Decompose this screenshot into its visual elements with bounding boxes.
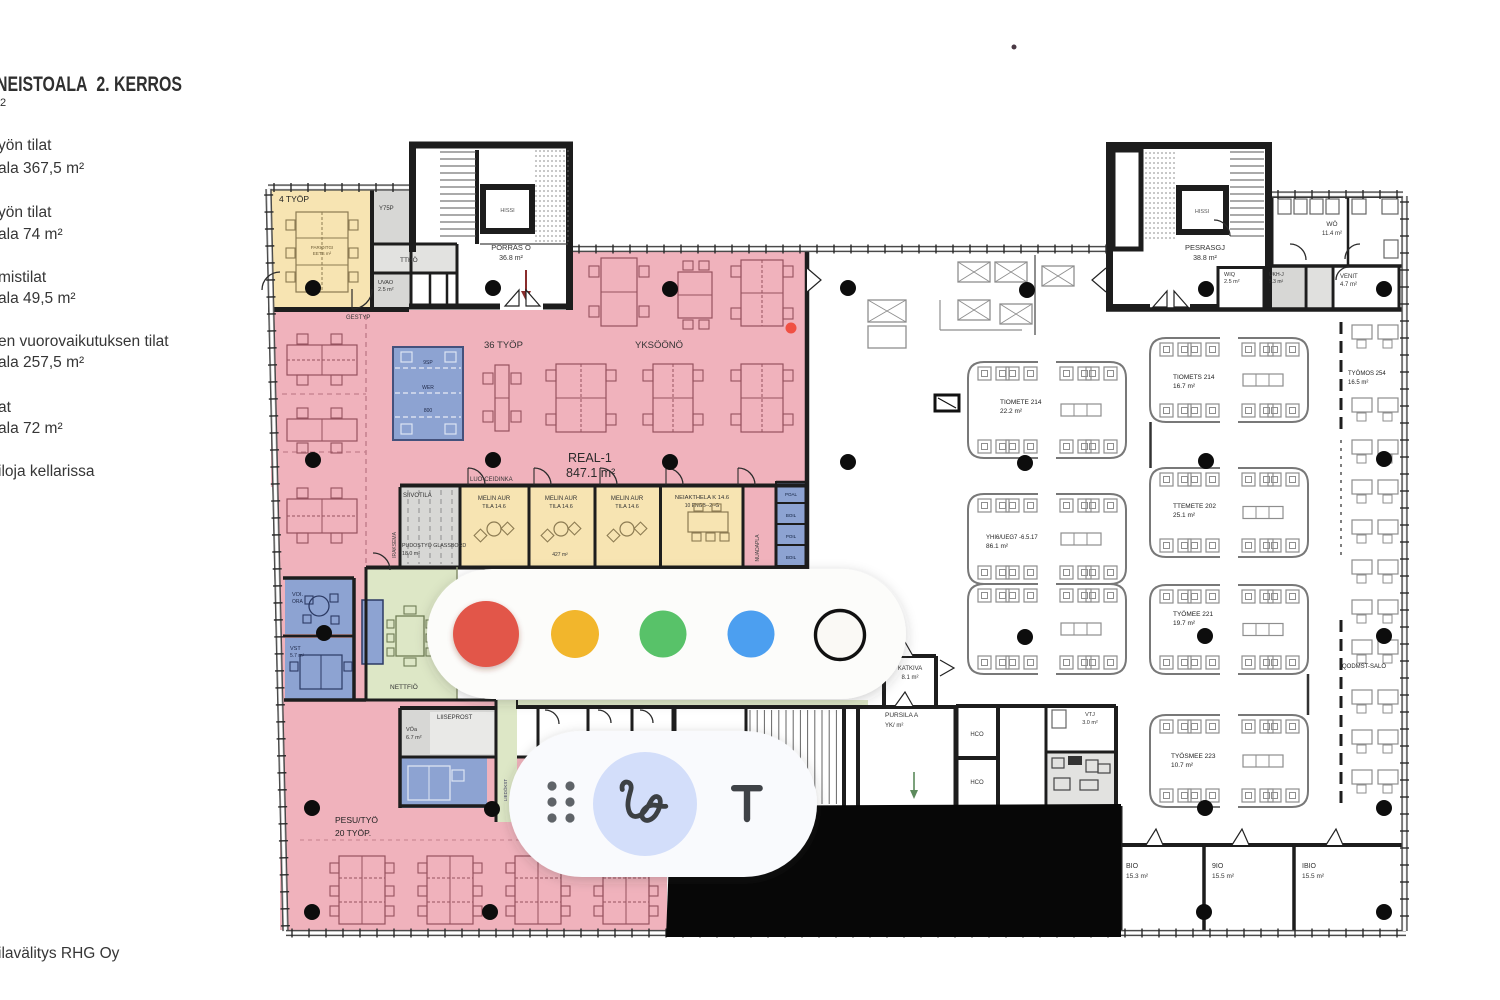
svg-text:VOI.: VOI. — [292, 592, 303, 598]
svg-text:ala 257,5 m²: ala 257,5 m² — [0, 354, 84, 371]
svg-text:18.0 m²: 18.0 m² — [402, 551, 420, 557]
svg-text:HCO: HCO — [970, 732, 984, 738]
svg-text:15.5 m²: 15.5 m² — [1212, 873, 1235, 880]
svg-text:5.7 m²: 5.7 m² — [290, 653, 305, 659]
svg-text:TYÖMEE 221: TYÖMEE 221 — [1173, 610, 1213, 618]
svg-text:YKSÖÖNÖ: YKSÖÖNÖ — [635, 340, 683, 351]
svg-text:TIOMETE 214: TIOMETE 214 — [1000, 399, 1042, 406]
svg-text:TILA 14.6: TILA 14.6 — [549, 504, 573, 510]
svg-text:6.7 m²: 6.7 m² — [406, 735, 422, 741]
svg-text:800: 800 — [424, 408, 433, 414]
svg-text:TILA 14.6: TILA 14.6 — [482, 504, 506, 510]
svg-text:TTHÖ: TTHÖ — [400, 256, 418, 264]
svg-text:36.8 m²: 36.8 m² — [499, 255, 523, 262]
svg-text:VTJ: VTJ — [1085, 712, 1095, 718]
svg-text:POAL: POAL — [785, 492, 798, 497]
svg-text:IBIO: IBIO — [1302, 863, 1317, 870]
svg-text:22.2 m²: 22.2 m² — [1000, 408, 1023, 415]
svg-text:5.3 m²: 5.3 m² — [1269, 279, 1284, 285]
svg-text:4 TYÖP: 4 TYÖP — [279, 194, 309, 204]
svg-text:iloja kellarissa: iloja kellarissa — [0, 463, 95, 480]
svg-text:10.7 m²: 10.7 m² — [1171, 762, 1194, 769]
svg-text:ilavälitys RHG Oy: ilavälitys RHG Oy — [0, 945, 120, 962]
svg-text:ORA: ORA — [292, 599, 304, 605]
svg-text:mistilat: mistilat — [0, 269, 47, 286]
svg-text:NUADAPLA: NUADAPLA — [755, 534, 761, 562]
svg-text:POIL: POIL — [786, 534, 797, 539]
svg-text:MELIN AUR: MELIN AUR — [611, 496, 644, 502]
svg-text:EETS m²: EETS m² — [313, 251, 332, 256]
svg-text:LUO-CEIDINKA: LUO-CEIDINKA — [470, 477, 513, 483]
svg-text:20 TYÖP.: 20 TYÖP. — [335, 828, 371, 838]
svg-text:GESTYP: GESTYP — [346, 315, 370, 321]
svg-text:2: 2 — [0, 97, 6, 109]
svg-text:LIISEPROST: LIISEPROST — [437, 715, 473, 721]
svg-text:NEISTOALA 2. KERROS: NEISTOALA 2. KERROS — [0, 73, 182, 96]
svg-text:BIO: BIO — [1126, 863, 1139, 870]
svg-text:3.0 m²: 3.0 m² — [1082, 720, 1098, 726]
svg-text:ala 72 m²: ala 72 m² — [0, 420, 63, 437]
svg-text:LIEDÖKST: LIEDÖKST — [502, 779, 508, 802]
svg-text:19.7 m²: 19.7 m² — [1173, 620, 1196, 627]
svg-text:WER: WER — [422, 385, 434, 391]
svg-text:REAL-1: REAL-1 — [568, 451, 612, 465]
svg-text:YHI6/UEG7 -6.5.17: YHI6/UEG7 -6.5.17 — [986, 535, 1038, 541]
svg-text:yön tilat: yön tilat — [0, 204, 52, 221]
svg-text:UVAO: UVAO — [378, 280, 394, 286]
svg-text:TILA 14.6: TILA 14.6 — [615, 504, 639, 510]
svg-text:HISSI: HISSI — [500, 208, 515, 214]
svg-text:11.4 m²: 11.4 m² — [1322, 231, 1342, 237]
svg-text:ala 74 m²: ala 74 m² — [0, 226, 63, 243]
svg-text:4.7 m²: 4.7 m² — [1340, 282, 1357, 288]
svg-text:86.1 m²: 86.1 m² — [986, 543, 1009, 550]
svg-text:8.1 m²: 8.1 m² — [901, 675, 918, 681]
svg-text:PUDOSTYÖ GLASSBORD: PUDOSTYÖ GLASSBORD — [402, 542, 466, 549]
svg-text:TIOMETS 214: TIOMETS 214 — [1173, 374, 1215, 381]
svg-text:en vuorovaikutuksen tilat: en vuorovaikutuksen tilat — [0, 333, 169, 350]
svg-text:PARIOITGI: PARIOITGI — [311, 245, 333, 250]
svg-text:KATKIVA: KATKIVA — [898, 666, 922, 672]
svg-text:ala 367,5 m²: ala 367,5 m² — [0, 160, 84, 177]
svg-text:yön tilat: yön tilat — [0, 137, 52, 154]
svg-text:HISSI: HISSI — [1195, 209, 1210, 215]
svg-text:SIIVOTILA: SIIVOTILA — [403, 493, 432, 499]
svg-text:NETTFIÖ: NETTFIÖ — [390, 683, 418, 691]
svg-text:16.7 m²: 16.7 m² — [1173, 383, 1196, 390]
svg-text:VST: VST — [290, 646, 301, 652]
svg-text:BOIL: BOIL — [786, 513, 797, 518]
svg-text:2.5 m²: 2.5 m² — [378, 287, 394, 293]
svg-text:QODMST-SALO: QODMST-SALO — [1342, 664, 1386, 670]
svg-text:NEIAKTHELA K 14.6: NEIAKTHELA K 14.6 — [675, 495, 729, 501]
svg-text:PORRAS O: PORRAS O — [491, 243, 531, 252]
svg-text:BOIL: BOIL — [786, 555, 797, 560]
svg-text:YK/ m²: YK/ m² — [885, 723, 903, 729]
svg-text:9SP: 9SP — [423, 360, 433, 366]
svg-text:2.5 m²: 2.5 m² — [1224, 279, 1240, 285]
svg-text:ala 49,5 m²: ala 49,5 m² — [0, 290, 76, 307]
svg-text:PESU/TYÖ: PESU/TYÖ — [335, 815, 378, 825]
svg-text:427 m²: 427 m² — [552, 552, 568, 558]
svg-text:MELIN AUR: MELIN AUR — [478, 496, 511, 502]
svg-text:HCO: HCO — [970, 780, 984, 786]
svg-text:PESRASGJ: PESRASGJ — [1185, 243, 1225, 252]
svg-text:TTEMETE 202: TTEMETE 202 — [1173, 503, 1216, 510]
svg-text:Y75P: Y75P — [379, 206, 394, 212]
svg-text:MELIN AUR: MELIN AUR — [545, 496, 578, 502]
svg-text:25.1 m²: 25.1 m² — [1173, 512, 1196, 519]
svg-text:16.5 m²: 16.5 m² — [1348, 380, 1368, 386]
svg-text:9IO: 9IO — [1212, 863, 1224, 870]
svg-text:VÖa: VÖa — [406, 726, 418, 733]
svg-text:TYÖSMEE 223: TYÖSMEE 223 — [1171, 752, 1216, 760]
svg-text:UKH-J: UKH-J — [1269, 272, 1284, 278]
svg-text:WÖ: WÖ — [1326, 220, 1337, 228]
svg-text:WIQ: WIQ — [1224, 272, 1236, 278]
svg-text:847.1 m²: 847.1 m² — [566, 466, 615, 480]
svg-text:36 TYÖP: 36 TYÖP — [484, 340, 523, 351]
svg-text:15.5 m²: 15.5 m² — [1302, 873, 1325, 880]
svg-text:IRAKSEMA: IRAKSEMA — [392, 531, 398, 558]
svg-text:15.3 m²: 15.3 m² — [1126, 873, 1149, 880]
svg-text:VENIT: VENIT — [1340, 274, 1358, 280]
svg-text:TYÖMOS 254: TYÖMOS 254 — [1348, 370, 1386, 377]
svg-text:PURSILA A: PURSILA A — [885, 712, 919, 719]
svg-text:at: at — [0, 399, 12, 416]
svg-text:38.8 m²: 38.8 m² — [1193, 255, 1217, 262]
